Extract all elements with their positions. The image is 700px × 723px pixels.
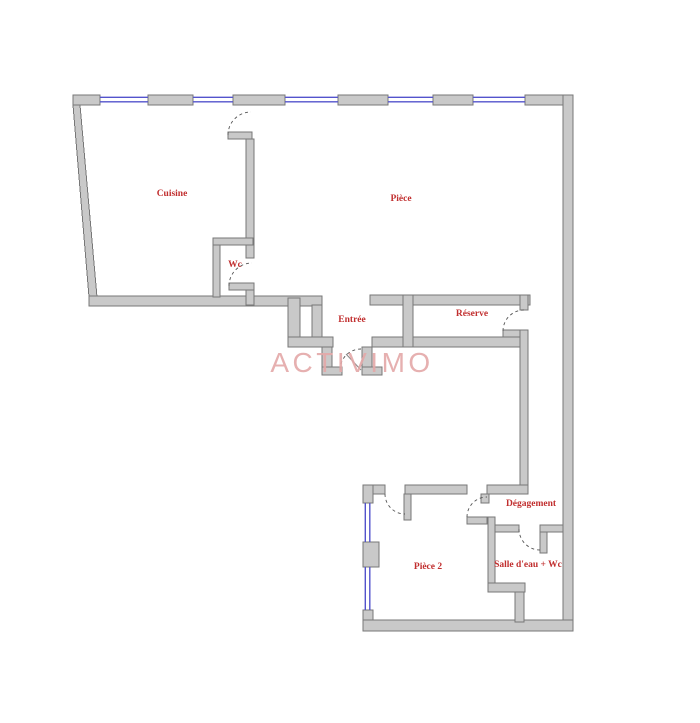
- door-arc-piece2-left: [385, 494, 405, 514]
- window: [100, 97, 148, 102]
- room-label-cuisine: Cuisine: [157, 189, 188, 199]
- door-leaf: [540, 532, 547, 553]
- room-label-salle-eau: Salle d'eau + Wc: [494, 560, 562, 570]
- window: [365, 503, 370, 542]
- door-leaf: [229, 283, 254, 290]
- room-label-entree: Entrée: [338, 315, 365, 325]
- wall: [488, 517, 495, 585]
- wall: [520, 295, 528, 310]
- room-label-piece: Pièce: [390, 194, 411, 204]
- room-label-degagement: Dégagement: [506, 499, 557, 509]
- wall: [488, 583, 525, 592]
- wall: [288, 337, 333, 347]
- wall: [363, 542, 379, 567]
- room-label-wc: Wc: [228, 260, 242, 270]
- wall: [363, 620, 573, 631]
- wall-slanted: [73, 105, 97, 297]
- wall: [213, 238, 220, 297]
- door-leaf: [228, 132, 252, 139]
- wall: [233, 95, 285, 105]
- room-label-piece2: Pièce 2: [414, 562, 442, 572]
- wall: [403, 295, 413, 347]
- wall: [213, 238, 253, 245]
- wall: [563, 95, 573, 630]
- wall: [540, 525, 563, 532]
- wall: [148, 95, 193, 105]
- door-arc-reserve: [503, 310, 524, 331]
- door-arc-salle-eau: [519, 529, 540, 550]
- window: [285, 97, 338, 102]
- wall: [338, 95, 388, 105]
- wall: [363, 485, 373, 503]
- doors-layer: [228, 112, 540, 550]
- wall: [515, 592, 524, 622]
- floor-plan-page: Cuisine Pièce Wc Entrée Réserve Dégageme…: [0, 0, 700, 723]
- wall: [481, 494, 489, 503]
- window: [193, 97, 233, 102]
- window: [388, 97, 433, 102]
- wall: [312, 305, 322, 337]
- window: [473, 97, 525, 102]
- wall: [405, 485, 467, 494]
- door-leaf: [467, 517, 487, 524]
- wall: [89, 296, 322, 306]
- floor-plan-svg: Cuisine Pièce Wc Entrée Réserve Dégageme…: [0, 0, 700, 723]
- watermark-text: ACTIVIMO: [270, 347, 433, 378]
- wall: [433, 95, 473, 105]
- wall: [520, 330, 528, 494]
- wall: [372, 337, 528, 347]
- wall: [487, 485, 528, 494]
- wall: [495, 525, 519, 532]
- room-label-reserve: Réserve: [456, 309, 488, 319]
- wall: [73, 95, 100, 105]
- door-leaf: [404, 494, 411, 520]
- wall: [370, 295, 530, 305]
- window: [365, 567, 370, 610]
